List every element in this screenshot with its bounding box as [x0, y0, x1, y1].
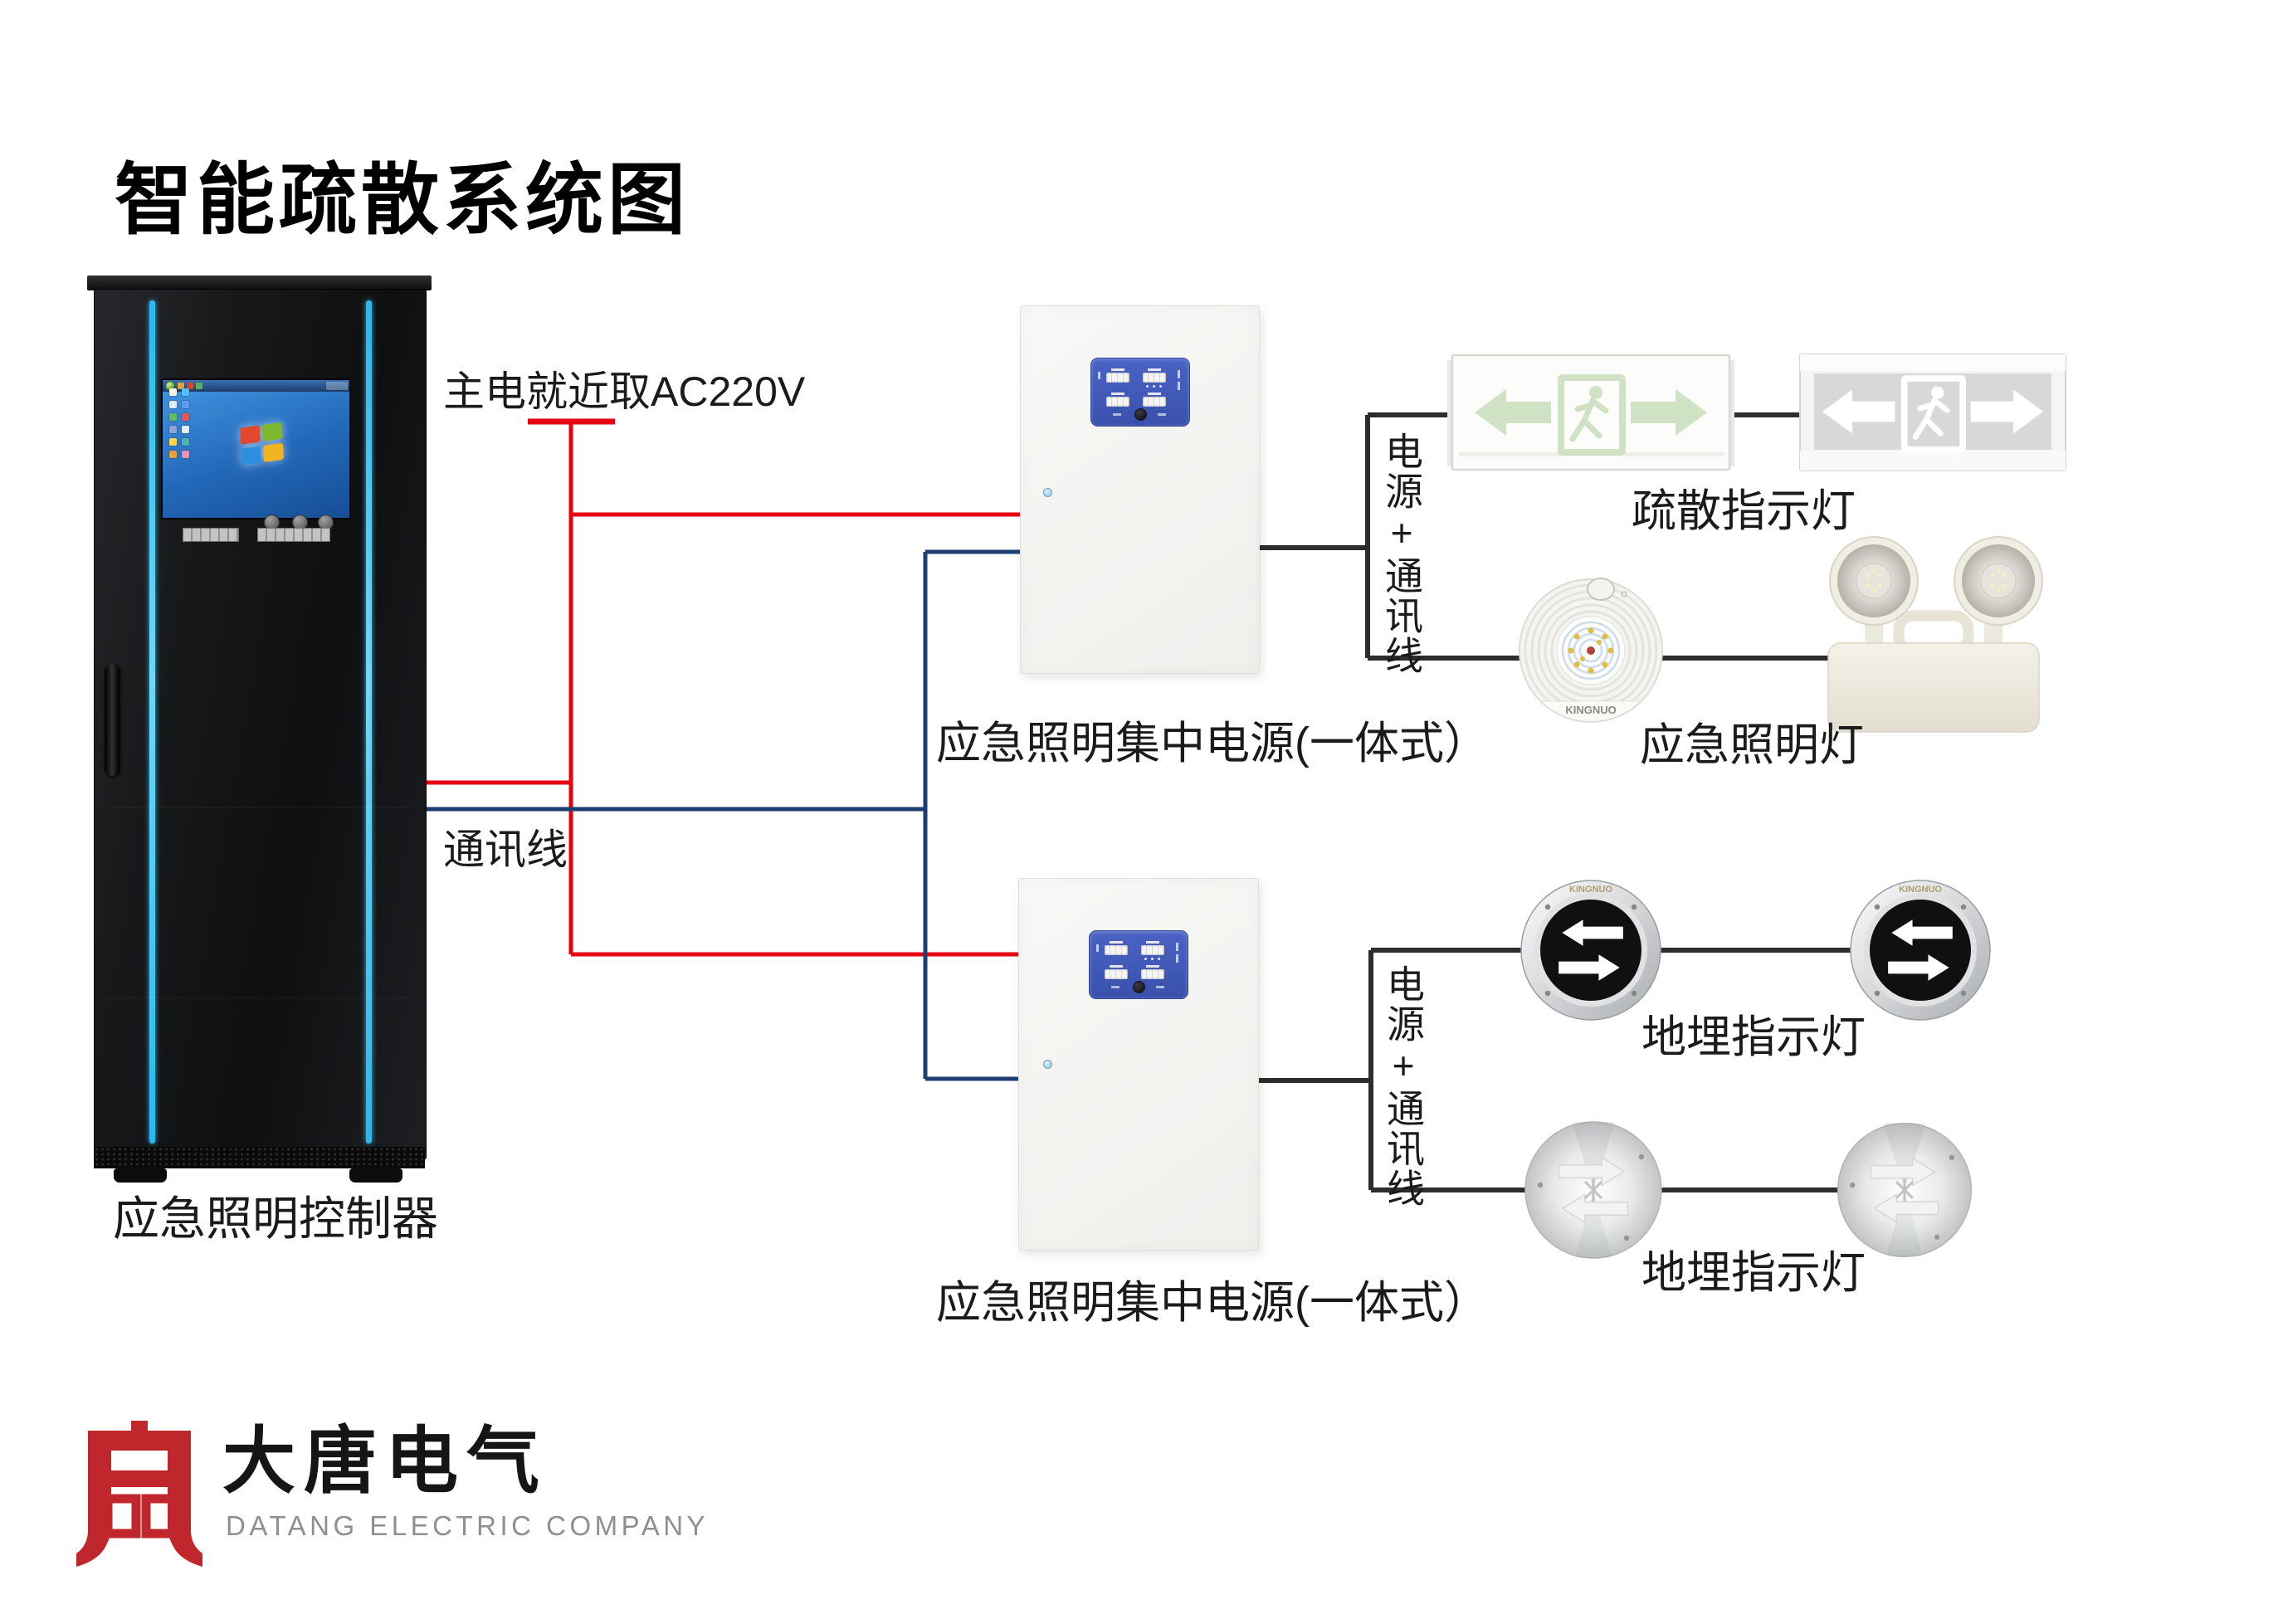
desktop-icon: [182, 426, 189, 433]
panel-mark: [1113, 413, 1121, 416]
cabinet-foot: [114, 1168, 167, 1183]
panel-side-mark: [1178, 370, 1180, 378]
buried-brand-text: KINGNUO: [1569, 885, 1612, 895]
buried-light-unlit-2: [1838, 1124, 1972, 1257]
exit-sign-lit: [1447, 355, 1734, 470]
cabinet-foot: [349, 1168, 402, 1183]
evacuation-system-diagram: KINGNUO: [0, 0, 2278, 1624]
segment-display: [1143, 373, 1166, 383]
desktop-icon: [169, 401, 177, 408]
cabinet-seam: [107, 807, 412, 807]
power-unit-1: [1020, 305, 1260, 674]
emblem-mid-bar: [106, 1470, 173, 1487]
round-emergency-lamp: KINGNUO: [1519, 578, 1662, 722]
cabinet-vent-grille: [94, 1147, 425, 1168]
center-led: [1587, 646, 1595, 655]
lamp-brand-text: KINGNUO: [1565, 704, 1616, 716]
exit-sign-label: 疏散指示灯: [1632, 488, 1856, 535]
logo-company-name-en: DATANG ELECTRIC COMPANY: [226, 1512, 709, 1541]
power-unit-1-label: 应急照明集中电源(一体式）: [936, 720, 1489, 768]
taskbar-clock: [326, 382, 348, 390]
buried-brand-text: KINGNUO: [1899, 885, 1942, 895]
screw-icon: [1043, 1060, 1052, 1069]
panel-caption: [1148, 393, 1161, 395]
bus1-wire-label: 电源+通讯线: [1374, 432, 1429, 675]
panel-caption: [1111, 368, 1124, 371]
logo-company-name-cn: 大唐电气: [222, 1422, 548, 1499]
sign-bottom-trim: [1800, 451, 2066, 471]
power-unit-2-label: 应急照明集中电源(一体式）: [936, 1280, 1489, 1327]
buried-light-lit-2: KINGNUO: [1851, 880, 1990, 1020]
cabinet-display-screen: [161, 378, 351, 519]
cabinet-door-handle: [105, 664, 120, 776]
buried-light-label-bottom: 地埋指示灯: [1641, 1250, 1866, 1297]
power-unit-2: [1018, 878, 1259, 1251]
lamp-head-left: [1830, 537, 1918, 625]
desktop-icon: [182, 451, 189, 458]
segment-display: [1106, 373, 1129, 383]
panel-caption: [1111, 393, 1124, 395]
cabinet-label-strip: [257, 528, 330, 542]
exit-sign-unlit: [1800, 354, 2066, 471]
emergency-light-label: 应急照明灯: [1640, 722, 1864, 769]
comm-wire-label: 通讯线: [443, 828, 568, 872]
windows-logo-icon: [240, 422, 286, 466]
sign-top-trim: [1800, 354, 2066, 371]
panel-button: [1133, 981, 1145, 993]
buried-light-unlit-1: [1525, 1122, 1661, 1258]
cabinet-seam: [107, 997, 412, 998]
panel-dot: [1153, 385, 1155, 388]
emblem-square: [108, 1499, 136, 1534]
desktop-icon: [169, 388, 177, 396]
windows-pane: [263, 442, 284, 461]
panel-caption: [1148, 368, 1161, 371]
emblem-stub: [131, 1421, 148, 1451]
black-face: [1540, 900, 1641, 1001]
panel-dot: [1151, 958, 1154, 960]
desktop-icon: [169, 413, 177, 421]
panel-side-mark: [1178, 382, 1180, 390]
panel-dot: [1158, 958, 1160, 960]
panel-caption: [1146, 965, 1159, 968]
desktop-icon: [182, 388, 189, 396]
bus2-wire-label: 电源+通讯线: [1376, 964, 1431, 1208]
buried-light-lit-1: KINGNUO: [1521, 880, 1661, 1020]
power-unit-panel: [1090, 358, 1190, 427]
segment-display: [1105, 969, 1128, 979]
segment-display: [1141, 945, 1164, 955]
screw-icon: [1043, 488, 1052, 497]
panel-caption: [1110, 941, 1123, 944]
page-title: 智能疏散系统图: [115, 159, 690, 241]
desktop-icon: [169, 438, 177, 446]
datang-logo-icon: [76, 1421, 202, 1567]
power-wires: [422, 422, 1022, 954]
panel-caption: [1110, 965, 1123, 968]
panel-dot: [1144, 958, 1147, 960]
taskbar-icon: [196, 383, 202, 389]
desktop-icon: [182, 413, 189, 421]
panel-side-mark: [1096, 944, 1099, 952]
comm-wires: [422, 552, 1022, 1079]
cabinet-label: 应急照明控制器: [113, 1195, 438, 1244]
segment-display: [1105, 945, 1128, 955]
panel-side-mark: [1176, 954, 1178, 963]
desktop-icons: [167, 386, 192, 461]
panel-dot: [1146, 385, 1149, 388]
twin-head-emergency-light: [1828, 537, 2042, 732]
cabinet-accent-strip-right: [366, 300, 372, 1144]
desktop-icon: [169, 451, 177, 458]
segment-display: [1143, 397, 1166, 407]
segment-display: [1141, 969, 1164, 979]
windows-pane: [262, 422, 283, 441]
power-unit-panel: [1089, 930, 1188, 999]
windows-pane: [241, 446, 261, 465]
emblem-square: [146, 1499, 174, 1534]
desktop-icon: [169, 426, 177, 433]
windows-pane: [240, 425, 261, 444]
cabinet-accent-strip-left: [149, 300, 155, 1144]
battery-body: [1828, 643, 2039, 732]
panel-mark: [1111, 986, 1119, 988]
lamp-head-right: [1954, 537, 2042, 625]
panel-side-mark: [1098, 372, 1100, 379]
desktop-icon: [182, 401, 189, 408]
desktop-icon: [182, 438, 189, 446]
panel-side-mark: [1176, 943, 1178, 951]
panel-button: [1134, 408, 1147, 421]
black-face: [1870, 900, 1971, 1001]
panel-mark: [1158, 413, 1166, 416]
panel-dot: [1159, 385, 1162, 388]
controller-cabinet: [90, 276, 428, 1190]
panel-caption: [1146, 941, 1159, 944]
segment-display: [1106, 397, 1129, 407]
lamp-button: [1588, 578, 1614, 600]
panel-mark: [1156, 986, 1164, 988]
buried-light-label-top: 地埋指示灯: [1641, 1014, 1866, 1061]
cabinet-label-strip: [183, 528, 239, 542]
main-power-wire-label: 主电就近取AC220V: [443, 370, 805, 414]
